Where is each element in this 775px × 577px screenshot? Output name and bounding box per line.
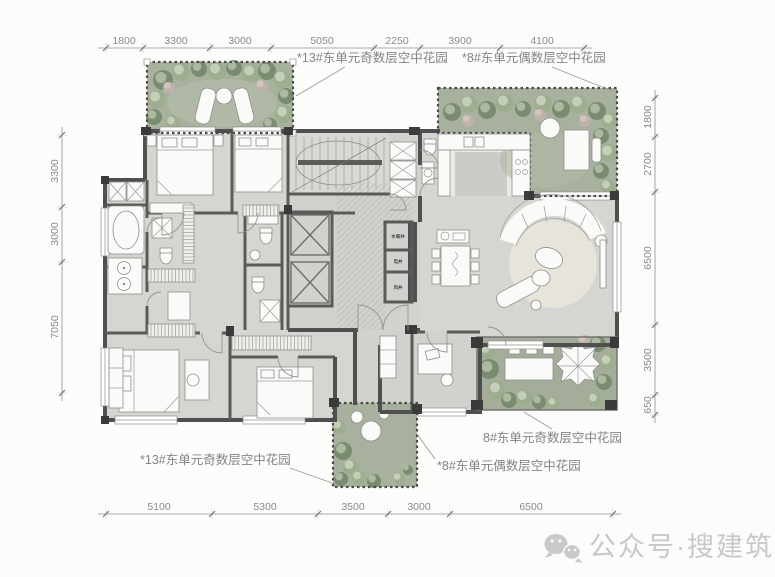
dim-top: 5050: [310, 35, 334, 47]
dim-right: 6500: [642, 246, 654, 270]
wechat-icon: [545, 534, 584, 563]
floor-plan-page: 水暖井 电井 风井 1800 3300 3000 5050 2250 3900 …: [0, 0, 775, 577]
desk: [185, 360, 209, 400]
dim-top: 1800: [112, 35, 136, 47]
bed: [147, 135, 223, 195]
dim-left: 3300: [49, 159, 61, 183]
dim-right: 1800: [642, 105, 654, 129]
garden-label-bottom-left: *13#东单元奇数层空中花园: [140, 452, 291, 467]
dim-top: 4100: [530, 35, 554, 47]
window: [418, 408, 466, 416]
dim-right: 650: [642, 396, 654, 414]
dim-top: 3300: [164, 35, 188, 47]
bed: [235, 135, 282, 192]
watermark-text: 公众号·搜建筑: [589, 532, 774, 562]
dim-bottom: 3000: [407, 501, 431, 513]
garden-label-top-right: *8#东单元偶数层空中花园: [462, 50, 606, 65]
dim-top: 2250: [385, 35, 409, 47]
watermark: 公众号·搜建筑: [545, 532, 775, 563]
garden-label-right-bottom: 8#东单元奇数层空中花园: [483, 430, 622, 445]
garden-label-bottom-center: *8#东单元偶数层空中花园: [437, 458, 581, 473]
dim-left: 3000: [49, 222, 61, 246]
shaft-label: 电井: [394, 258, 403, 265]
dim-right: 2700: [642, 152, 654, 176]
sliding-door: [613, 222, 621, 312]
window: [115, 416, 177, 424]
dim-right: 3500: [642, 348, 654, 372]
bed: [257, 367, 313, 418]
garden-table: [540, 118, 560, 138]
garden-table: [361, 421, 381, 441]
floor-plan-drawing: 水暖井 电井 风井 1800 3300 3000 5050 2250 3900 …: [0, 0, 775, 577]
garden-mat: [564, 130, 589, 170]
outdoor-table: [505, 358, 553, 380]
window: [488, 341, 543, 349]
dim-top: 3900: [448, 35, 472, 47]
dim-left: 7050: [49, 315, 61, 339]
garden-label-top-left: *13#东单元奇数层空中花园: [297, 50, 448, 65]
dim-bottom: 3500: [341, 501, 365, 513]
dim-bottom: 5300: [253, 501, 277, 513]
garden-table: [216, 88, 232, 104]
dim-bottom: 6500: [519, 501, 543, 513]
desk: [168, 292, 190, 320]
bathroom-fixtures: [108, 182, 144, 294]
garden-chair: [592, 138, 601, 162]
bed: [109, 348, 179, 412]
dim-bottom: 5100: [147, 501, 171, 513]
window: [101, 348, 109, 406]
tv-console: [600, 240, 606, 288]
shaft-label: 风井: [394, 284, 403, 291]
shaft-label: 水暖井: [391, 233, 405, 240]
dim-top: 3000: [228, 35, 252, 47]
